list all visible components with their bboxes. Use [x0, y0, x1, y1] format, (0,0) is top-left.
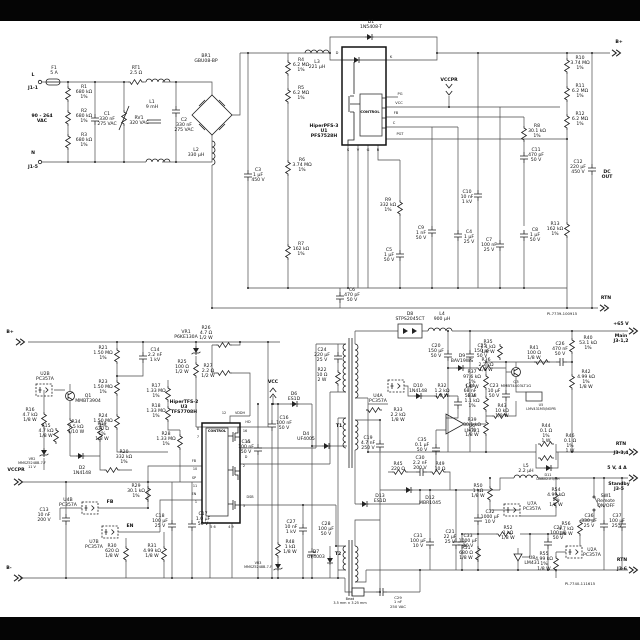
label-r6: R6 3.74 MΩ 1% [292, 158, 311, 173]
label-main: Main J3-1,2 [614, 334, 629, 344]
label-hd: HD [245, 421, 250, 425]
label-r45: R45 220 Ω [391, 462, 405, 472]
label-u4b: U4B PC357A [59, 498, 77, 508]
label-c30: C30 2.2 nF 200 V [413, 456, 427, 471]
label-r35: R35 1.1 kΩ 1/8 W [481, 340, 496, 355]
label-7: 7 [197, 436, 199, 440]
label-c23: C23 10 µF 50 V [488, 384, 501, 399]
label-c22: C22 100 nF 50 V [550, 526, 566, 541]
label-r23: R23 1.50 MΩ 1% [93, 380, 112, 395]
label-l4: L4 900 µH [434, 312, 451, 322]
label-c12: C12 220 µF 450 V [570, 160, 586, 175]
label-r54: R54 4.99 kΩ 1% 1/8 W [547, 488, 565, 509]
label-r31: R31 4.99 kΩ 1/8 W [143, 544, 161, 559]
label-r44: R44 0.1 Ω 1% 1 W [540, 424, 552, 445]
label-r32: R32 1.2 kΩ 1/8 W [435, 384, 450, 399]
label-c20: C20 150 µF 50 V [428, 344, 444, 359]
label-u2b: U2B PC357A [36, 372, 54, 382]
label-hipertfs-2: HiperTFS-2 U3 TFS7708H [170, 400, 199, 415]
label-r7: R7 162 kΩ 1% [293, 242, 309, 257]
label-c15: C15 100 nF 50 V [238, 440, 254, 455]
label-r1: R1 680 kΩ 1% [76, 85, 92, 100]
label-c9: C9 1 nF 50 V [416, 226, 426, 241]
label-u2a: U2A PC357A [583, 548, 601, 558]
label-br1: BR1 GBU08-BP [194, 54, 217, 64]
label-vccpr: VCCPR [7, 468, 24, 473]
label-r52: R52 1 kΩ 1/8 W [501, 526, 514, 541]
label-c25: C25 150 µF 50 V [474, 344, 490, 359]
label-r25: R25 100 Ω 1/2 W [175, 360, 189, 375]
label-l3: L3 221 µH [309, 60, 326, 70]
label-vr2: VR2 MMSZ5248B-7-F 11 V [18, 458, 46, 469]
label-fb: FB [107, 500, 114, 505]
label-c37: C37 100 µF 25 V [609, 514, 625, 529]
label-c11: C11 470 pF 50 V [528, 148, 544, 163]
label-r34: R34 7.5 kΩ 1/10 W [68, 420, 84, 435]
label-8: 8 [197, 428, 199, 432]
label-r50: R50 1 kΩ 1/8 W [471, 484, 484, 499]
label-u8: U8 LM431 [524, 556, 539, 566]
label-u5: U5 LMV431M5/NOPB [526, 404, 555, 412]
label-c29: C29 1 nF 250 VAC [390, 596, 406, 609]
label-r26: R26 4.7 Ω 1/2 W [199, 326, 212, 341]
label-control: CONTROL [360, 110, 379, 114]
label-en: EN [192, 493, 197, 497]
label-j3-6: J3-6 [617, 567, 627, 572]
label-rtn: RTN [617, 558, 627, 563]
label-r55: R55 4.99 kΩ 1% 1/8 W [535, 552, 553, 573]
label-r49: R49 10 Ω [435, 462, 446, 472]
label-d1: D1 1N5408-T [360, 20, 382, 30]
label-vddh: VDDH [235, 412, 245, 416]
label-u4a: U4A PC357A [369, 394, 387, 404]
label-l5: L5 2.2 µH [518, 464, 533, 474]
label-r20: R20 332 kΩ 1% [116, 450, 132, 465]
label-hs: HS [246, 441, 251, 445]
label-c3: C3 1 µF 450 V [251, 168, 264, 183]
label-d11: D11 DNB02-E3/5H [536, 474, 559, 482]
label-r36: R36 2.2 kΩ 1/8 W [479, 358, 494, 373]
label-t1: T1 [336, 424, 342, 429]
label-n: N [31, 151, 35, 156]
label-d: D [336, 51, 339, 55]
label-r2: R2 680 kΩ 1% [76, 109, 92, 124]
schematic-page: F1 5 ALJ1-190 - 264 VACNJ1-5R1 680 kΩ 1%… [0, 0, 640, 640]
label-r30: R30 620 Ω 1/8 W [105, 544, 119, 559]
label-c27: C27 10 nF 1 kV [285, 520, 298, 535]
label-d9: D9 BAV19WS [451, 354, 473, 364]
label-d6: D6 ES1D [288, 392, 300, 402]
label-u7a: U7A PC357A [523, 502, 541, 512]
label-c10: C10 10 nF 1 kV [461, 190, 474, 205]
label-en: EN [127, 524, 134, 529]
label-j1-1: J1-1 [28, 86, 38, 91]
label-r42: R42 4.99 kΩ 1% 1/8 W [577, 370, 595, 391]
label-r28: R28 1.33 MΩ 1% [156, 432, 175, 447]
label-10: 10 [193, 468, 197, 472]
label-standby: Standby J3-5 [608, 482, 629, 492]
label-r24: R24 1.50 MΩ 1% [93, 414, 112, 429]
label-q1: Q1 MMBT3904 [75, 394, 101, 404]
label-r18: R18 1.33 MΩ 1% [146, 404, 165, 419]
label-fb: FB [192, 460, 196, 464]
label-j1-5: J1-5 [28, 165, 38, 170]
label-pg: PG [398, 92, 403, 96]
label-r12: R12 6.2 MΩ 1% [572, 112, 588, 127]
label-b+: B+ [6, 330, 13, 335]
label-c33: C33 1000 µF 10 V [459, 534, 478, 549]
label-r48: R48 1 kΩ 1/8 W [283, 540, 296, 555]
label-f1: F1 5 A [50, 66, 58, 76]
label-control: CONTROL [208, 430, 226, 434]
label-c8: C8 1 µF 50 V [530, 228, 540, 243]
label-c26: C26 470 nF 50 V [552, 342, 568, 357]
label-r4: R4 6.2 MΩ 1% [293, 58, 309, 73]
label-vccpr: VCCPR [440, 78, 457, 83]
label-vcc: VCC [395, 101, 402, 105]
label-c35: C35 0.1 µF 50 V [415, 438, 429, 453]
label-r19: R19 620 Ω 1% 1/8 W [95, 422, 109, 443]
label-hiperpfs-3: HiperPFS-3 U1 PFS7528H [309, 124, 338, 139]
label-c: C [393, 121, 396, 125]
label-11: 11 [193, 485, 197, 489]
label-4: 4 9 [228, 526, 233, 530]
label-r15: R15 4.7 kΩ 1/8 W [39, 424, 54, 439]
label-u7b: U7B PC357A [85, 540, 103, 550]
label-r43: R43 10 kΩ 1/8 W [495, 404, 508, 419]
label-r37: R37 97.6 kΩ 1% 1/8 W [463, 370, 481, 391]
label-3: 3 [243, 505, 245, 509]
label-c13: C13 10 nF 200 V [37, 508, 50, 523]
label-d12: D12 MBR1045 [419, 496, 441, 506]
label-rv1: RV1 320 VAC [129, 116, 148, 126]
label-v: V [357, 148, 359, 152]
label-c28: C28 100 µF 50 V [318, 522, 334, 537]
label-l: L [32, 73, 35, 78]
label-l2: L2 330 µH [188, 148, 205, 158]
label-rt1: RT1 2.5 Ω [130, 66, 142, 76]
label-d2: D2 1N4148 [73, 466, 91, 476]
label-90: 90 - 264 VAC [31, 114, 52, 124]
label-rtn: RTN [601, 296, 611, 301]
label-r: R [377, 148, 380, 152]
label-r39: R39 30.1 kΩ 1% 1/8 W [463, 418, 481, 439]
label-5: 5 V, 4 A [607, 466, 626, 471]
label-r10: R10 3.74 MΩ 1% [570, 56, 589, 71]
label-r38: R38 1.1 kΩ 1% [465, 394, 480, 409]
label-q3: Q3 MMBT4403LT1G [501, 380, 531, 389]
label-dsb: DSB [246, 496, 253, 500]
label-d4: D4 UF4005 [297, 432, 315, 442]
label-16: 16 [243, 430, 247, 434]
label-c5: C5 1 µF 50 V [384, 248, 394, 263]
label-d13: D13 ES1D [374, 494, 386, 504]
label-r46: R46 0.1 Ω 1% 1 W [564, 434, 576, 455]
label-2: 2 [243, 465, 245, 469]
label-t2: T2 [335, 552, 341, 557]
label-r11: R11 6.2 MΩ 1% [572, 84, 588, 99]
label-g: G [367, 148, 370, 152]
label-r17: R17 1.33 MΩ 1% [146, 384, 165, 399]
label-r22: R22 10 Ω 2 W [317, 368, 328, 383]
label-c16: C16 100 nF 50 V [276, 416, 292, 431]
label-c4: C4 1 µF 25 V [464, 230, 474, 245]
label-sp: SP [192, 477, 196, 481]
label-r9: R9 332 kΩ 1% [380, 198, 396, 213]
label-c17: C17 1.0 µF 50 V [196, 512, 210, 527]
label-r16: R16 4.7 kΩ 1/8 W [23, 408, 38, 423]
label-d10: D10 1N4148 [409, 384, 427, 394]
label-dc: DC OUT [602, 170, 613, 180]
label-r5: R5 6.2 MΩ 1% [293, 86, 309, 101]
label-r41: R41 100 Ω 1/8 W [527, 346, 541, 361]
label-c24: C24 220 µF 25 V [314, 348, 330, 363]
label-c6: C6 470 pF 50 V [344, 288, 360, 303]
label-r3: R3 680 kΩ 1% [76, 133, 92, 148]
label-r51: R51 680 Ω 1/8 W [459, 546, 473, 561]
label-j3-34: J3-3,4 [614, 451, 629, 456]
label-r33: R33 2.2 kΩ 1/8 W [391, 408, 406, 423]
label-c34: C34 68 nF 50 V [464, 384, 477, 399]
label-5: 5 6 [210, 526, 215, 530]
label-pi-7739-100915: PI-7739-100915 [547, 312, 577, 316]
label-pi-7740-111615: PI-7740-111615 [565, 582, 595, 586]
label-u6: U6 LM321 [464, 424, 479, 434]
label-b+: B+ [615, 40, 622, 45]
label-d7: D7 UF4003 [307, 550, 325, 560]
label-c21: C21 22 µF 25 V [444, 530, 457, 545]
label-pgt: PGT [396, 132, 403, 136]
label-r27: R27 2.2 Ω 1/2 W [201, 364, 214, 379]
label-c7: C7 100 nF 25 V [481, 238, 497, 253]
label-c32: C32 1000 µF 10 V [481, 510, 500, 525]
label-c1: C1 330 nF 275 VAC [97, 112, 116, 127]
label-fb: FB [394, 111, 399, 115]
label-d8: D8 STPS2045CT [395, 312, 424, 322]
labels-layer: F1 5 ALJ1-190 - 264 VACNJ1-5R1 680 kΩ 1%… [0, 0, 640, 640]
label-r40: R40 53.1 kΩ 1% [579, 336, 597, 351]
label-bead: Bead 3.5 mm × 3.25 mm [333, 598, 366, 606]
label-c19: C19 4.7 nF 250 V [361, 436, 375, 451]
label-c2: C2 330 nF 275 VAC [174, 118, 193, 133]
label-12: 12 [222, 412, 226, 416]
label-c14: C14 2.2 nF 1 kV [148, 348, 162, 363]
label-vcc: VCC [268, 380, 278, 385]
label-r21: R21 1.50 MΩ 1% [93, 346, 112, 361]
label-sw1: SW1 Remote ON/OFF [597, 494, 615, 509]
label-b-: B- [6, 566, 11, 571]
label-1: 1 [195, 501, 197, 505]
label-c31: C31 100 µF 10 V [410, 534, 426, 549]
label-s: S [347, 148, 349, 152]
label-vr1: VR1 P6KE130A [174, 330, 198, 340]
label-+65: +65 V [613, 322, 628, 327]
label-rtn: RTN [616, 442, 626, 447]
label-c18: C18 100 µF 25 V [152, 514, 168, 529]
label-l1: L1 9 mH [146, 100, 158, 110]
label-k: K [390, 55, 392, 59]
label-c36: C36 330 µF 25 V [581, 514, 597, 529]
label-vr3: VR3 MMSZ5248B-7-F [244, 562, 272, 570]
label-r29: R29 30.1 kΩ 1% [127, 484, 145, 499]
label-d: D [245, 456, 248, 460]
label-r13: R13 162 kΩ 1% [547, 222, 563, 237]
label-r8: R8 30.1 kΩ 1% [528, 124, 546, 139]
label-r56: R56 4.7 kΩ 1/8 W [559, 522, 574, 537]
